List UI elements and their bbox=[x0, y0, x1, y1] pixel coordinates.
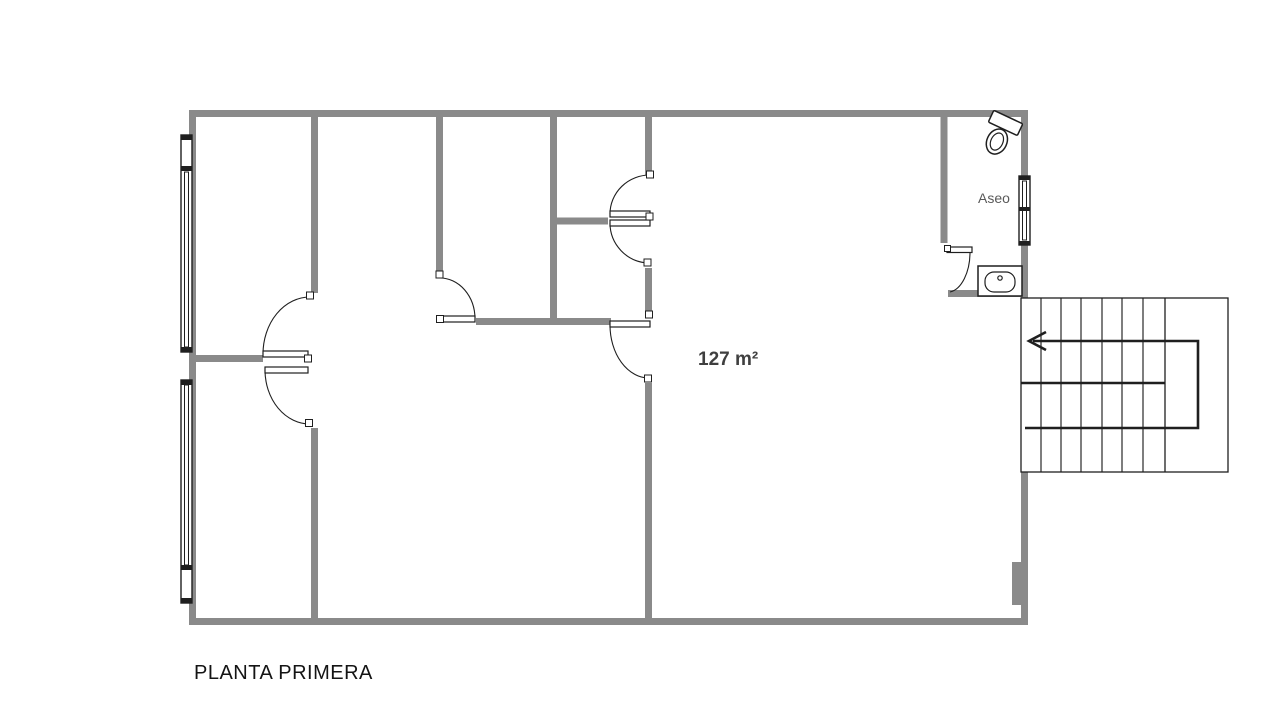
window-icon bbox=[1019, 176, 1030, 245]
door-swing-icon bbox=[263, 292, 314, 427]
floor-plan-canvas: Aseo 127 m² PLANTA PRIMERA bbox=[0, 0, 1280, 720]
area-label: 127 m² bbox=[698, 349, 758, 370]
door-swing-icon bbox=[610, 311, 653, 382]
door-swing-icon bbox=[610, 171, 654, 266]
stairs-icon bbox=[1021, 298, 1228, 472]
wall-column bbox=[1012, 562, 1022, 605]
floor-title: PLANTA PRIMERA bbox=[194, 662, 373, 684]
interior-walls bbox=[189, 110, 1028, 621]
floor-plan-page: Aseo 127 m² PLANTA PRIMERA bbox=[0, 0, 1280, 720]
window-icon bbox=[181, 135, 192, 352]
sink-icon bbox=[978, 266, 1022, 296]
window-icon bbox=[181, 380, 192, 603]
door-swing-icon bbox=[436, 271, 475, 323]
stair-path-line bbox=[1025, 341, 1198, 428]
bathroom-label: Aseo bbox=[978, 190, 1010, 206]
door-swing-icon bbox=[945, 246, 973, 293]
toilet-icon bbox=[977, 110, 1023, 160]
